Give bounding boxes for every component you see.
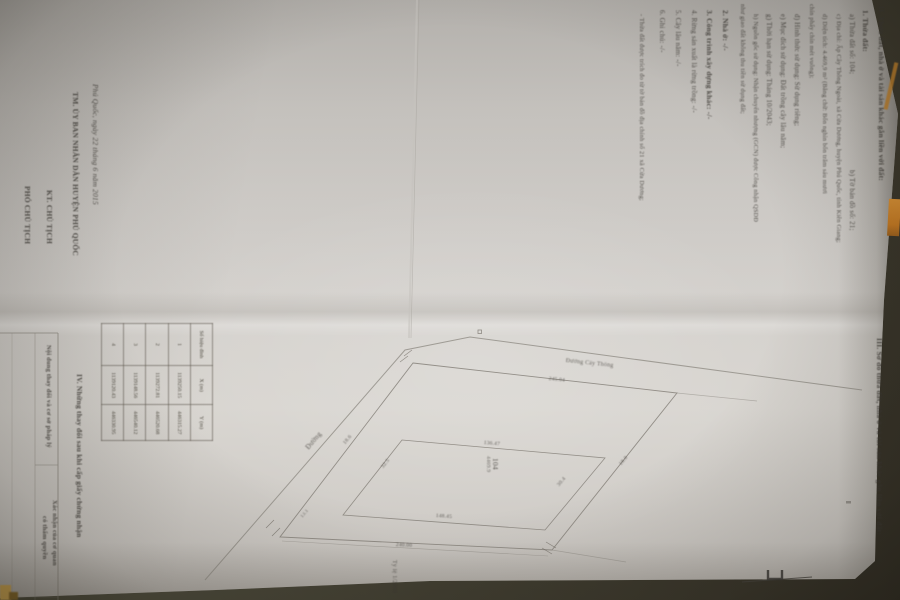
- survey-point-marker: [478, 330, 482, 334]
- diagram-label: 148.45: [436, 513, 453, 520]
- section4-line: Xác nhận của cơ quan: [51, 500, 58, 566]
- section2-line: 6. Ghi chú: -/-: [658, 10, 666, 53]
- diagram-label: 4469.9: [485, 456, 491, 472]
- coordinate-table-grid: Số hiệu đỉnhX (m)Y (m)11139250.15446315.…: [101, 323, 213, 441]
- coord-table-cell: 446330.95: [102, 405, 124, 441]
- section2-line: chín phẩy chín mét vuông);: [808, 4, 815, 78]
- coord-table-header: Số hiệu đỉnh: [190, 324, 212, 366]
- section2-line: g) Thời hạn sử dụng: Tháng 10/2043;: [765, 14, 773, 126]
- coord-table-cell: 446520.68: [146, 405, 168, 441]
- diagram-label: 104: [491, 458, 500, 470]
- coord-table-row: 11139250.15446315.27: [168, 324, 190, 441]
- section2-line: như giao đất không thu tiền sử dụng đất;: [739, 4, 746, 114]
- page-crease: [409, 0, 417, 338]
- section2-line: b) Tờ bản đồ số: 21;: [848, 170, 856, 231]
- corner-ticks: [266, 350, 556, 554]
- coord-table-header: Y (m): [190, 405, 212, 441]
- boundary-extension-2: [552, 550, 626, 562]
- coord-table-header: X (m): [190, 366, 212, 405]
- outer-parcel-boundary: [280, 363, 677, 550]
- inner-parcel-boundary: [343, 440, 605, 530]
- section2-line: 3. Công trình xây dựng khác: -/-: [705, 10, 714, 119]
- coord-table-cell: 1139120.43: [102, 366, 124, 405]
- coord-table-cell: 446315.27: [168, 405, 190, 441]
- coordinate-table: Số hiệu đỉnhX (m)Y (m)11139250.15446315.…: [97, 323, 213, 441]
- diagram-label: 136.47: [483, 440, 500, 447]
- coord-table-cell: 3: [124, 324, 146, 366]
- section2-line: II. Thửa đất, nhà ở và tài sản khác gắn …: [877, 6, 886, 181]
- photo-background: Số hiệu đỉnhX (m)Y (m)11139250.15446315.…: [0, 0, 900, 600]
- coord-table-cell: 1: [168, 324, 190, 366]
- section2-line: 4. Rừng sản xuất là rừng trồng: -/-: [690, 10, 698, 113]
- coord-table-cell: 2: [146, 324, 168, 366]
- road-edge-line: [205, 337, 862, 580]
- coord-table-cell: 1139250.15: [168, 366, 190, 405]
- boundary-extension: [677, 393, 757, 401]
- section2-line: - Thửa đất được trích đo từ tờ bản đồ đị…: [638, 14, 645, 201]
- section3-line: III. Sơ đồ thửa đất, nhà ở và tài sản kh…: [875, 338, 884, 535]
- section2-line: e) Mục đích sử dụng: Đất trồng cây lâu n…: [779, 14, 787, 148]
- section4-line: có thẩm quyền: [41, 516, 48, 559]
- coord-table-cell: 446540.12: [124, 405, 146, 441]
- section2-line: c) Địa chỉ: Ấp Cây Thông Ngoài, xã Cửa D…: [835, 14, 842, 243]
- diagram-label: 240.00: [396, 542, 413, 549]
- section4-line: IV. Những thay đổi sau khi cấp giấy chứn…: [75, 374, 84, 538]
- section2-line: 1. Thửa đất:: [861, 10, 870, 52]
- cover-orange-tab: [887, 199, 900, 237]
- coord-table-row: 41139120.43446330.95: [102, 324, 124, 441]
- corner-cover-bit-dark: [9, 592, 18, 600]
- section2-line: h) Nguồn gốc sử dụng: Nhận chuyển nhượng…: [752, 14, 759, 222]
- section2-line: 2. Nhà ở: -/-: [721, 10, 730, 51]
- section2-line: a) Thửa đất số: 104;: [848, 14, 856, 74]
- north-symbol: [742, 570, 812, 582]
- coord-table-cell: 4: [102, 324, 124, 366]
- signature-line: KT. CHỦ TỊCH: [45, 190, 54, 244]
- signature-line: PHÓ CHỦ TỊCH: [23, 186, 32, 244]
- coord-table-row: 31139148.56446540.12: [124, 324, 146, 441]
- section2-line: 5. Cây lâu năm: -/-: [674, 10, 682, 66]
- signature-line: TM. ỦY BAN NHÂN DÂN HUYỆN PHÚ QUỐC: [71, 92, 80, 256]
- small-mark: [846, 501, 851, 504]
- section2-line: d) Diện tích: 4.469,9 m² (Bằng chữ: Bốn …: [821, 14, 828, 194]
- section4-line: Nội dung thay đổi và cơ sở pháp lý: [45, 345, 52, 448]
- signature-line: Phú Quốc, ngày 22 tháng 6 năm 2015: [91, 84, 100, 205]
- section3-line: Tỷ lệ 1/2000: [391, 560, 397, 593]
- coord-table-cell: 1139272.81: [146, 366, 168, 405]
- coord-table-row: 21139272.81446520.68: [146, 324, 168, 441]
- section2-line: đ) Hình thức sử dụng: Sử dụng riêng;: [793, 14, 801, 126]
- coord-table-cell: 1139148.56: [124, 366, 146, 405]
